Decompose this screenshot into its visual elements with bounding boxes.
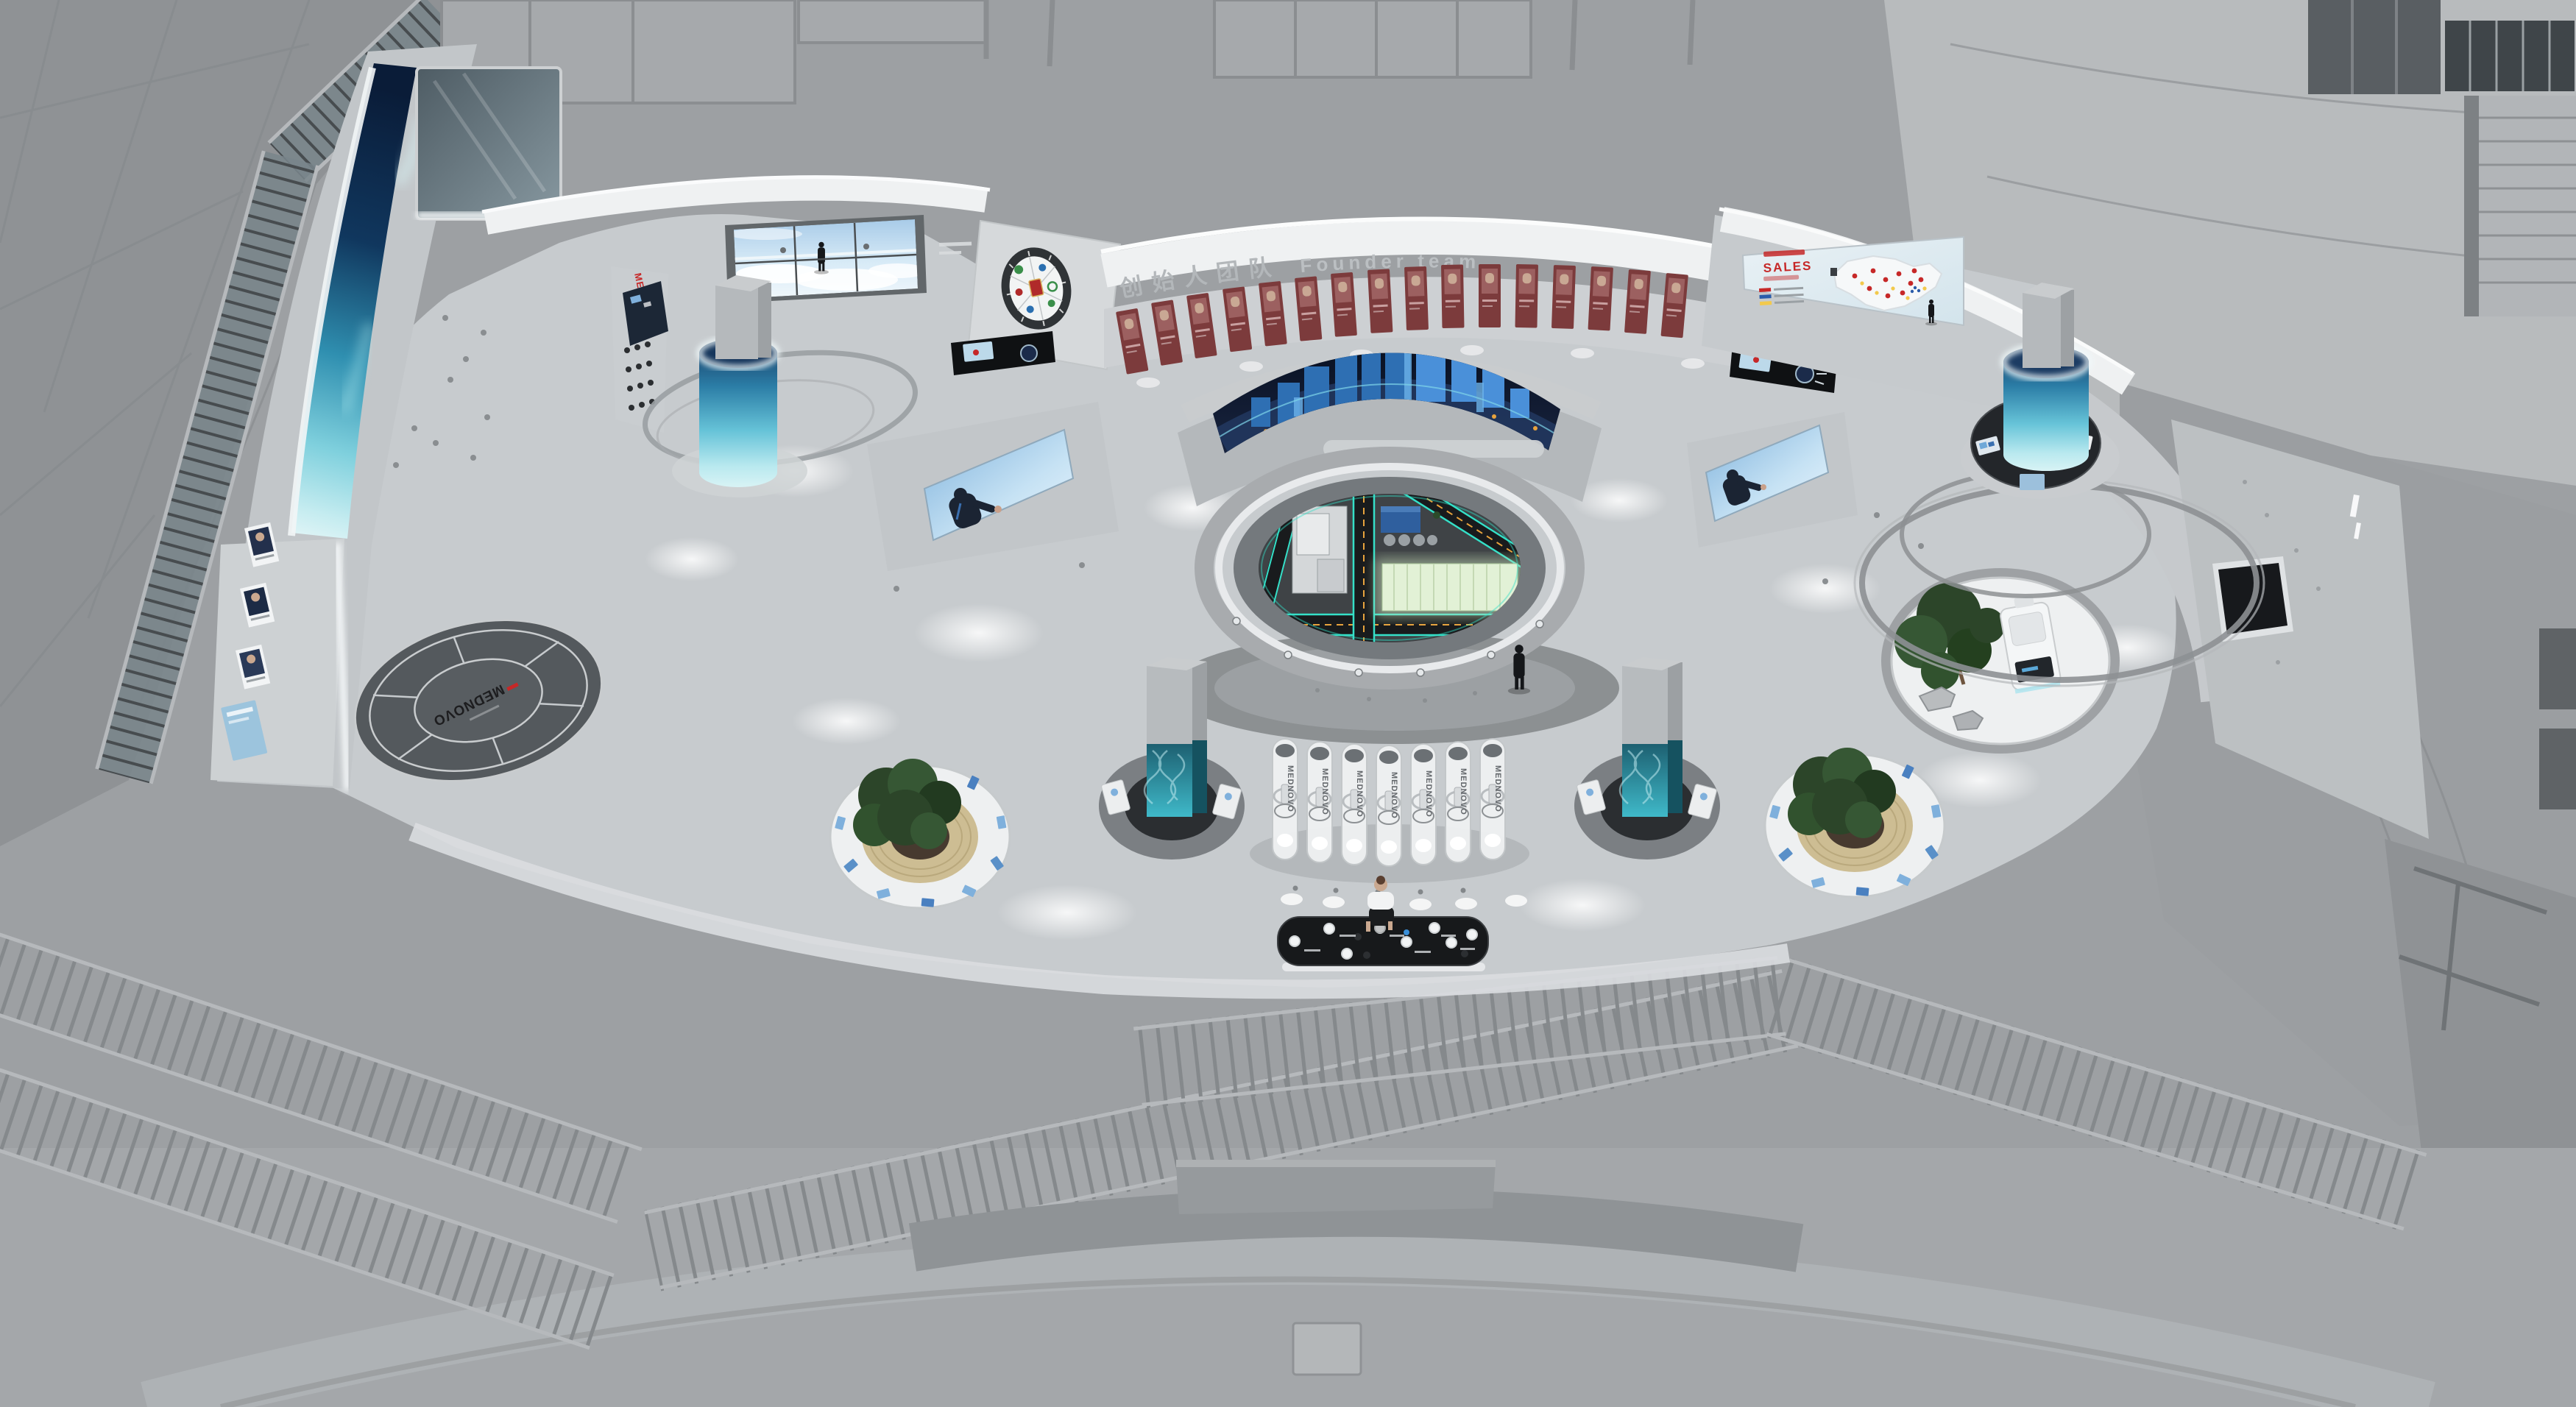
capsule-brand-text: MEDNOVO [1286,765,1295,812]
center-exhibit [1178,337,1602,695]
table-card [2020,474,2045,490]
photo-wall [210,522,347,790]
capsule-brand-text: MEDNOVO [1493,765,1502,812]
center-seal [1029,279,1044,297]
elevator-shaft [2308,0,2441,94]
window-grid [2445,21,2575,91]
product-capsules: MEDNOVO MEDNOVO MEDNOVO MEDNOVO MEDNOVO … [1250,739,1529,895]
exhibition-hall-render: MEDNOVO MEDNOVO [0,0,2576,1407]
sales-legend [1759,286,1804,305]
capsule-brand-text: MEDNOVO [1355,770,1364,818]
glowing-building [1382,564,1518,611]
floor-hatch [1293,1323,1361,1375]
capsule-brand-text: MEDNOVO [1320,768,1329,815]
capsule-brand-text: MEDNOVO [1459,768,1468,815]
kiosk-wall: MEDNOVO [611,266,668,433]
capsule-brand-text: MEDNOVO [1390,772,1398,819]
entrance-vestibule [417,68,561,219]
sales-title: SALES [1763,259,1813,275]
capsule-brand-text: MEDNOVO [1424,770,1433,818]
